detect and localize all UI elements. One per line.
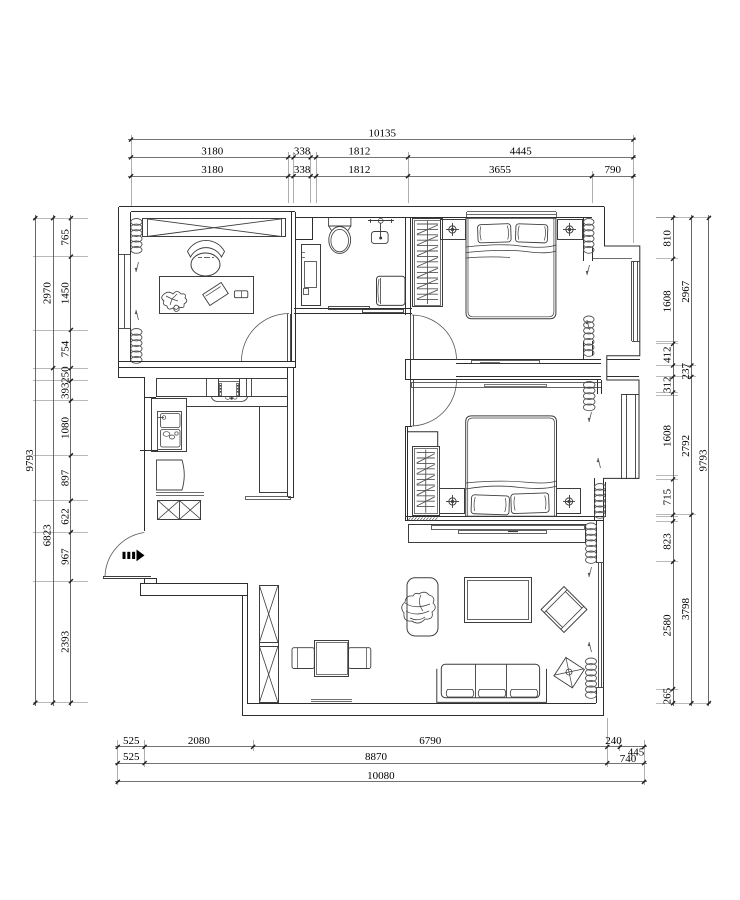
svg-text:2792: 2792 xyxy=(680,435,692,457)
svg-text:338: 338 xyxy=(294,145,311,157)
svg-text:740: 740 xyxy=(620,753,637,765)
svg-text:1608: 1608 xyxy=(662,424,674,447)
svg-text:237: 237 xyxy=(680,362,692,379)
svg-text:3798: 3798 xyxy=(680,598,692,621)
svg-text:2393: 2393 xyxy=(59,630,71,653)
svg-text:1812: 1812 xyxy=(348,145,370,157)
svg-text:2970: 2970 xyxy=(42,282,54,305)
svg-text:622: 622 xyxy=(59,508,71,525)
svg-text:412: 412 xyxy=(662,346,674,363)
svg-text:9793: 9793 xyxy=(24,449,36,472)
svg-text:265: 265 xyxy=(662,687,674,704)
svg-text:823: 823 xyxy=(662,533,674,550)
svg-text:2080: 2080 xyxy=(188,735,211,747)
svg-text:6823: 6823 xyxy=(42,524,54,547)
svg-text:810: 810 xyxy=(662,230,674,247)
svg-text:1812: 1812 xyxy=(348,164,370,176)
svg-text:6790: 6790 xyxy=(419,735,442,747)
svg-text:790: 790 xyxy=(604,164,621,176)
svg-text:754: 754 xyxy=(59,340,71,357)
svg-text:10135: 10135 xyxy=(368,128,396,140)
svg-text:240: 240 xyxy=(605,735,622,747)
svg-text:3655: 3655 xyxy=(489,164,512,176)
svg-text:3180: 3180 xyxy=(201,145,224,157)
svg-text:1080: 1080 xyxy=(59,417,71,440)
svg-text:1608: 1608 xyxy=(662,290,674,313)
svg-text:525: 525 xyxy=(123,735,140,747)
svg-text:765: 765 xyxy=(59,229,71,246)
svg-text:312: 312 xyxy=(662,376,674,393)
svg-text:897: 897 xyxy=(59,469,71,486)
svg-text:9793: 9793 xyxy=(697,449,709,472)
svg-text:3180: 3180 xyxy=(201,164,224,176)
svg-text:715: 715 xyxy=(662,488,674,505)
svg-text:1450: 1450 xyxy=(59,282,71,305)
svg-text:338: 338 xyxy=(294,164,311,176)
svg-text:393: 393 xyxy=(59,382,71,399)
svg-text:2967: 2967 xyxy=(680,280,692,303)
svg-text:525: 525 xyxy=(123,751,140,763)
svg-text:967: 967 xyxy=(59,548,71,565)
svg-text:2580: 2580 xyxy=(662,614,674,637)
svg-text:8870: 8870 xyxy=(365,751,388,763)
svg-text:10080: 10080 xyxy=(367,770,395,782)
svg-text:4445: 4445 xyxy=(510,145,533,157)
